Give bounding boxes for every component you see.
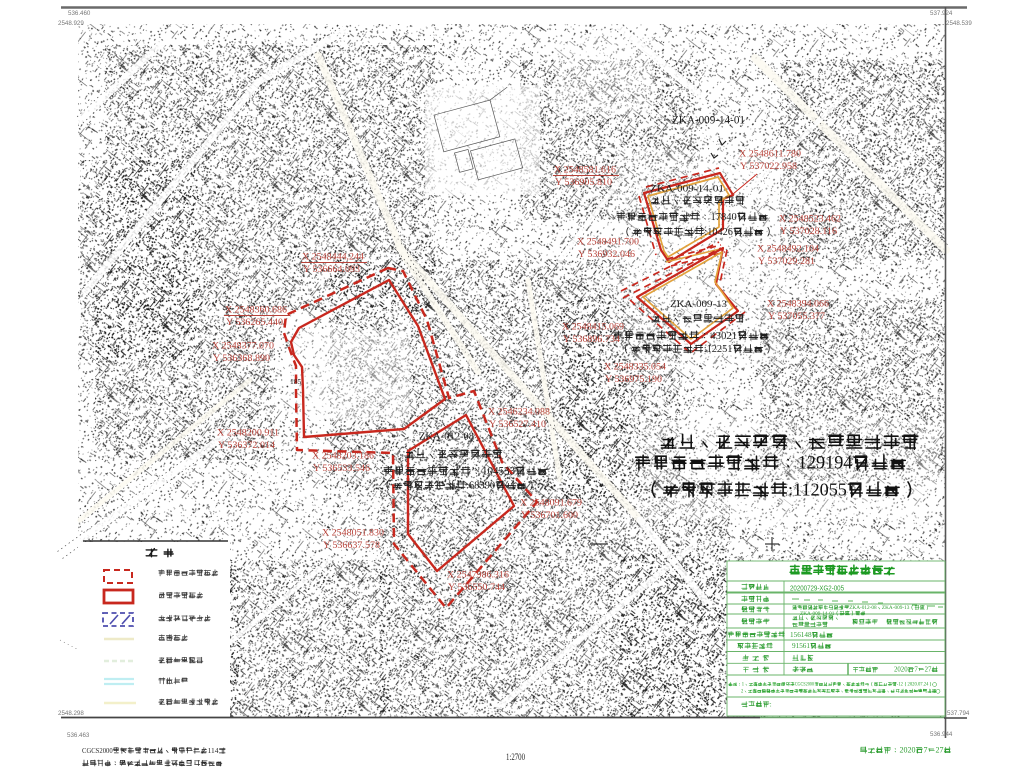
svg-text:2548.929: 2548.929 xyxy=(58,20,84,27)
svg-text:17840: 17840 xyxy=(711,211,737,223)
svg-text:Y 536896.734: Y 536896.734 xyxy=(563,334,621,344)
svg-text:X 2546234.088: X 2546234.088 xyxy=(488,407,551,417)
svg-text:Y 536527.410: Y 536527.410 xyxy=(489,419,547,429)
svg-text:X 2548444.244: X 2548444.244 xyxy=(302,252,365,262)
svg-text:Y 536637.578: Y 536637.578 xyxy=(323,540,381,550)
svg-text:Y 536975.190: Y 536975.190 xyxy=(605,374,663,384)
svg-text:7: 7 xyxy=(924,746,928,755)
svg-text:X 2548091.679: X 2548091.679 xyxy=(520,498,583,508)
svg-text:536.944: 536.944 xyxy=(930,731,953,738)
svg-text:ZKA-009-13: ZKA-009-13 xyxy=(670,299,727,310)
svg-text:104533: 104533 xyxy=(482,466,515,478)
svg-text:537.794: 537.794 xyxy=(947,710,970,717)
svg-text::112055: :112055 xyxy=(788,479,847,499)
svg-text:Y 537055.377: Y 537055.377 xyxy=(768,311,826,321)
svg-text:1:2700: 1:2700 xyxy=(506,752,525,762)
svg-text::68390: :68390 xyxy=(466,480,495,492)
svg-text:Y 536932.046: Y 536932.046 xyxy=(578,249,636,259)
svg-text:43021: 43021 xyxy=(710,330,737,342)
svg-text:ZKA-009-14-01: ZKA-009-14-01 xyxy=(650,184,724,195)
svg-text:Y 536265.440: Y 536265.440 xyxy=(226,317,284,327)
svg-text:X 2548523.462: X 2548523.462 xyxy=(779,214,841,224)
svg-text:2548.539: 2548.539 xyxy=(946,20,972,27)
svg-text:Y 536533.546: Y 536533.546 xyxy=(313,463,371,473)
svg-text:Y 536550.744: Y 536550.744 xyxy=(448,582,506,592)
svg-text:Y 537022.958: Y 537022.958 xyxy=(740,161,798,171)
svg-text:X 2548394.066: X 2548394.066 xyxy=(767,299,830,309)
svg-text::: : xyxy=(770,699,772,708)
svg-text:129194: 129194 xyxy=(798,452,853,473)
svg-text:Y 536701.600: Y 536701.600 xyxy=(521,510,579,520)
svg-text:Y 536368.890: Y 536368.890 xyxy=(213,353,271,363)
svg-text:X 2548491.700: X 2548491.700 xyxy=(577,237,640,247)
svg-text:Y 536664.093: Y 536664.093 xyxy=(303,264,361,274)
svg-text:Y 537029.281: Y 537029.281 xyxy=(758,256,815,266)
svg-text:X 2548335.054: X 2548335.054 xyxy=(604,362,667,372)
svg-text:27: 27 xyxy=(936,746,944,755)
svg-text:X 2548360.686: X 2548360.686 xyxy=(225,305,288,315)
svg-text:CGCS2000: CGCS2000 xyxy=(82,746,113,755)
svg-text:Y 536372.014: Y 536372.014 xyxy=(218,440,276,450)
svg-text:X 2548611.780: X 2548611.780 xyxy=(739,149,802,159)
svg-text:X 2548581.616: X 2548581.616 xyxy=(554,165,617,175)
svg-text:2020: 2020 xyxy=(894,667,908,674)
svg-text:20200729-XG2-005: 20200729-XG2-005 xyxy=(790,586,844,593)
svg-text:2548.298: 2548.298 xyxy=(58,710,84,717)
svg-text:91561: 91561 xyxy=(792,641,810,650)
svg-text:-12: -12 xyxy=(897,683,904,688)
svg-text:CGCS2000: CGCS2000 xyxy=(795,683,815,688)
svg-text:X 2548200.911: X 2548200.911 xyxy=(217,428,279,438)
svg-text:X 2548377.070: X 2548377.070 xyxy=(212,341,275,351)
svg-text:ZKA-012-08: ZKA-012-08 xyxy=(419,431,474,443)
svg-text:156148: 156148 xyxy=(790,630,812,639)
svg-text:536.463: 536.463 xyxy=(67,732,90,739)
svg-text:114: 114 xyxy=(208,746,219,755)
svg-text:Y 536905.810: Y 536905.810 xyxy=(555,177,613,187)
svg-text:X 2548051.830: X 2548051.830 xyxy=(322,528,385,538)
svg-text::10426: :10426 xyxy=(704,227,733,238)
svg-text:185: 185 xyxy=(290,377,302,386)
svg-text:ZKA-009-14-01: ZKA-009-14-01 xyxy=(672,115,745,127)
svg-text:X 2547986.316: X 2547986.316 xyxy=(447,570,510,580)
svg-text:ZKA-012-08: ZKA-012-08 xyxy=(849,605,877,611)
svg-text:537.924: 537.924 xyxy=(930,10,953,17)
svg-text::12251: :12251 xyxy=(704,344,733,355)
svg-text:X 2548203.186: X 2548203.186 xyxy=(312,451,375,461)
svg-text:7: 7 xyxy=(914,667,918,674)
svg-text:Y 537028.116: Y 537028.116 xyxy=(780,226,838,236)
svg-text:27: 27 xyxy=(925,667,932,674)
svg-text:X 2548415.069: X 2548415.069 xyxy=(562,322,625,332)
svg-text:536.460: 536.460 xyxy=(68,10,91,17)
svg-text:2020.07.24: 2020.07.24 xyxy=(908,683,930,688)
svg-text:X 2548492.104: X 2548492.104 xyxy=(757,244,820,254)
svg-text:ZKA-009-13: ZKA-009-13 xyxy=(882,605,910,611)
svg-text:2020: 2020 xyxy=(900,746,916,755)
